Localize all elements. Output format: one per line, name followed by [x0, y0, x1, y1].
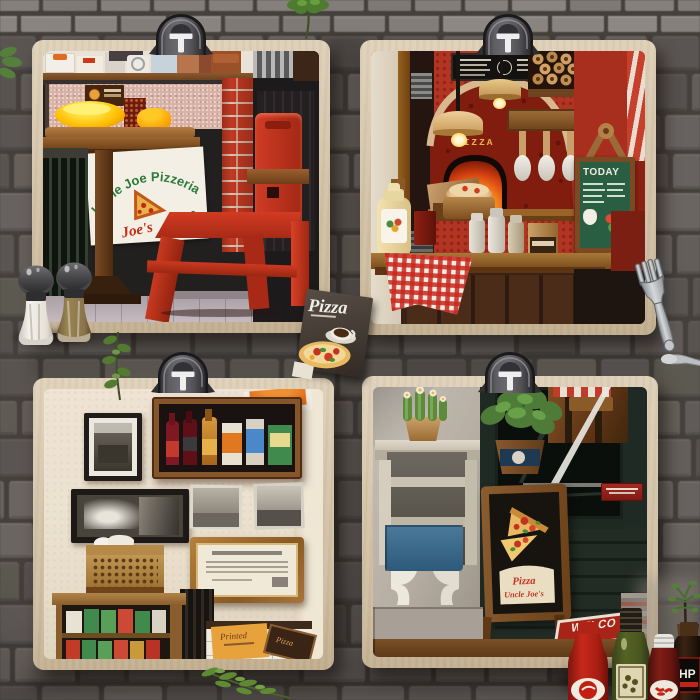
svg-text:Pizza: Pizza — [306, 295, 348, 318]
svg-text:HP: HP — [679, 667, 696, 681]
svg-text:Pizza: Pizza — [512, 575, 536, 588]
svg-text:Uncle Joe's: Uncle Joe's — [504, 589, 544, 599]
svg-text:Joe's: Joe's — [119, 219, 154, 241]
